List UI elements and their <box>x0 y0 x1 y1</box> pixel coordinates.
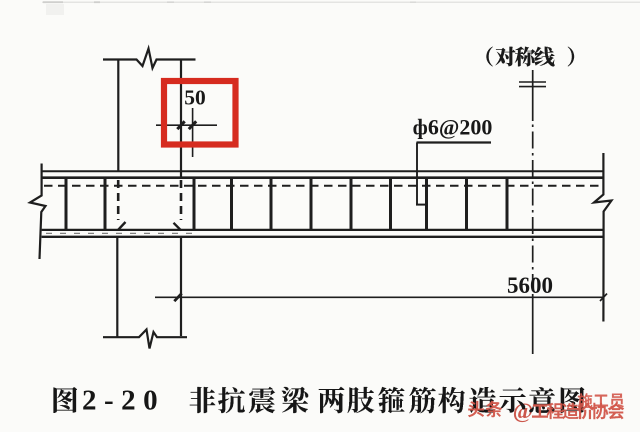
svg-text:ф6@200: ф6@200 <box>413 115 493 140</box>
svg-text:50: 50 <box>184 86 206 110</box>
svg-text:5600: 5600 <box>507 273 553 298</box>
svg-text:2-20: 2-20 <box>82 385 165 417</box>
